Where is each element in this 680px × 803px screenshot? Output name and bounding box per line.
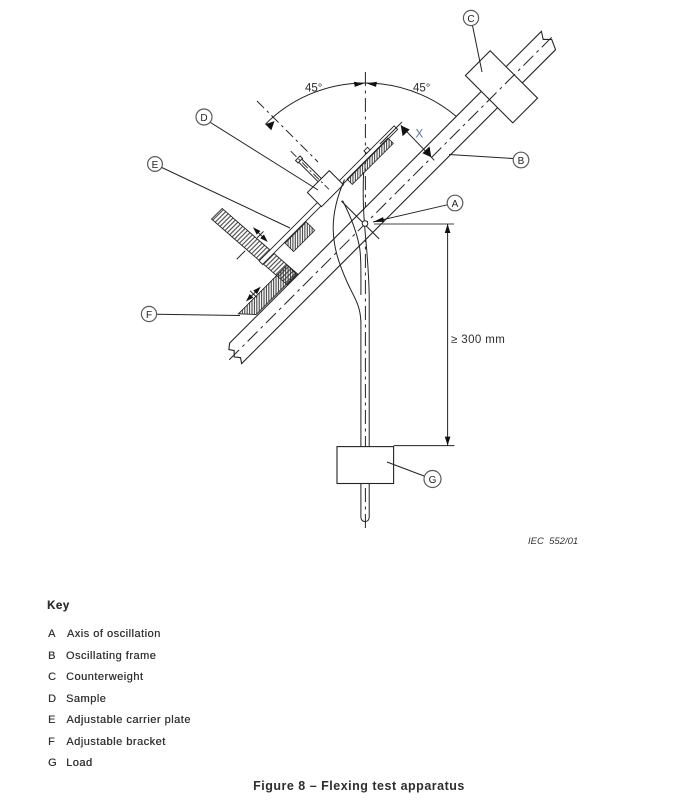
svg-text:A: A <box>452 199 459 210</box>
svg-text:45°: 45° <box>413 83 430 95</box>
svg-text:D: D <box>200 113 207 124</box>
svg-text:F: F <box>146 310 152 321</box>
svg-text:X: X <box>416 129 424 141</box>
svg-text:G: G <box>429 475 437 486</box>
svg-text:45°: 45° <box>305 83 322 95</box>
svg-text:E: E <box>152 160 159 171</box>
svg-text:C: C <box>467 14 474 25</box>
svg-text:B: B <box>518 156 525 167</box>
svg-text:IEC 552/01: IEC 552/01 <box>528 536 578 547</box>
svg-text:≥ 300 mm: ≥ 300 mm <box>451 334 505 346</box>
